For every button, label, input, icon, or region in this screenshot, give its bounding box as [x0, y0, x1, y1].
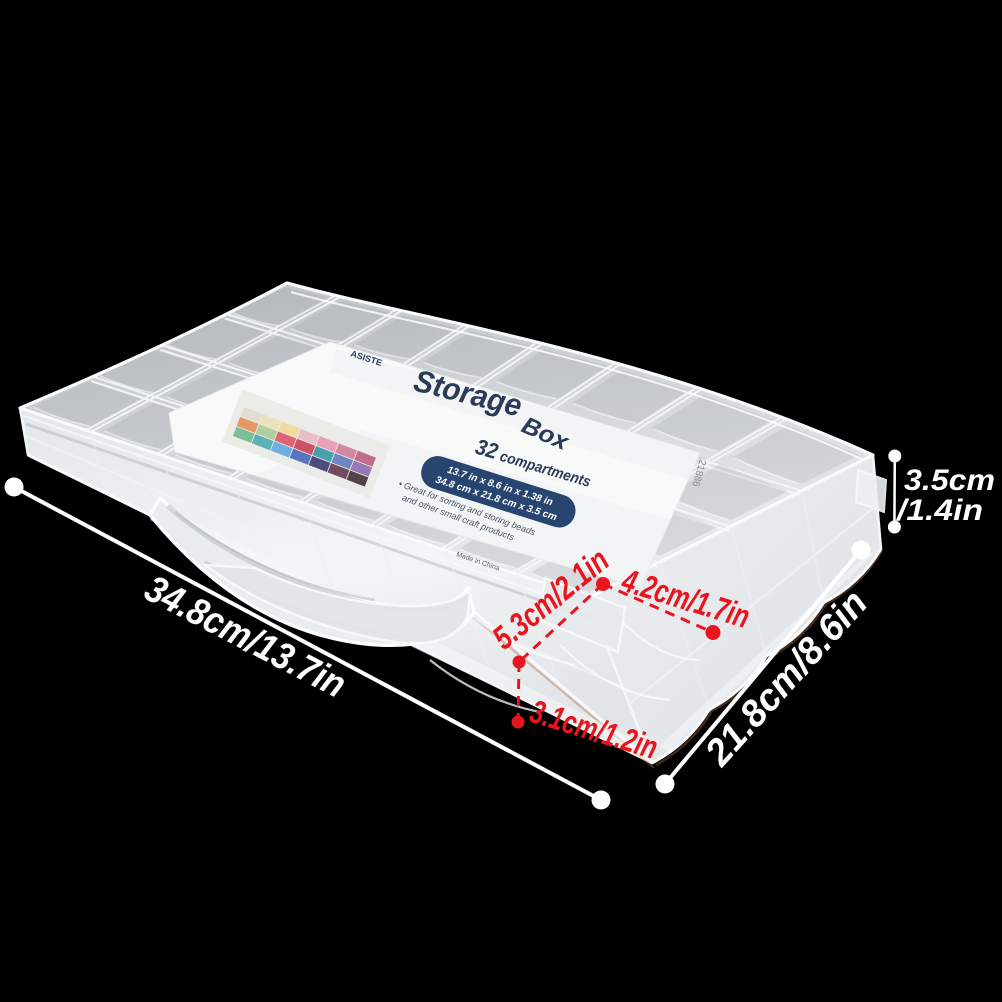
svg-text:3.5cm: 3.5cm	[904, 464, 995, 497]
svg-text:/1.4in: /1.4in	[895, 494, 983, 527]
